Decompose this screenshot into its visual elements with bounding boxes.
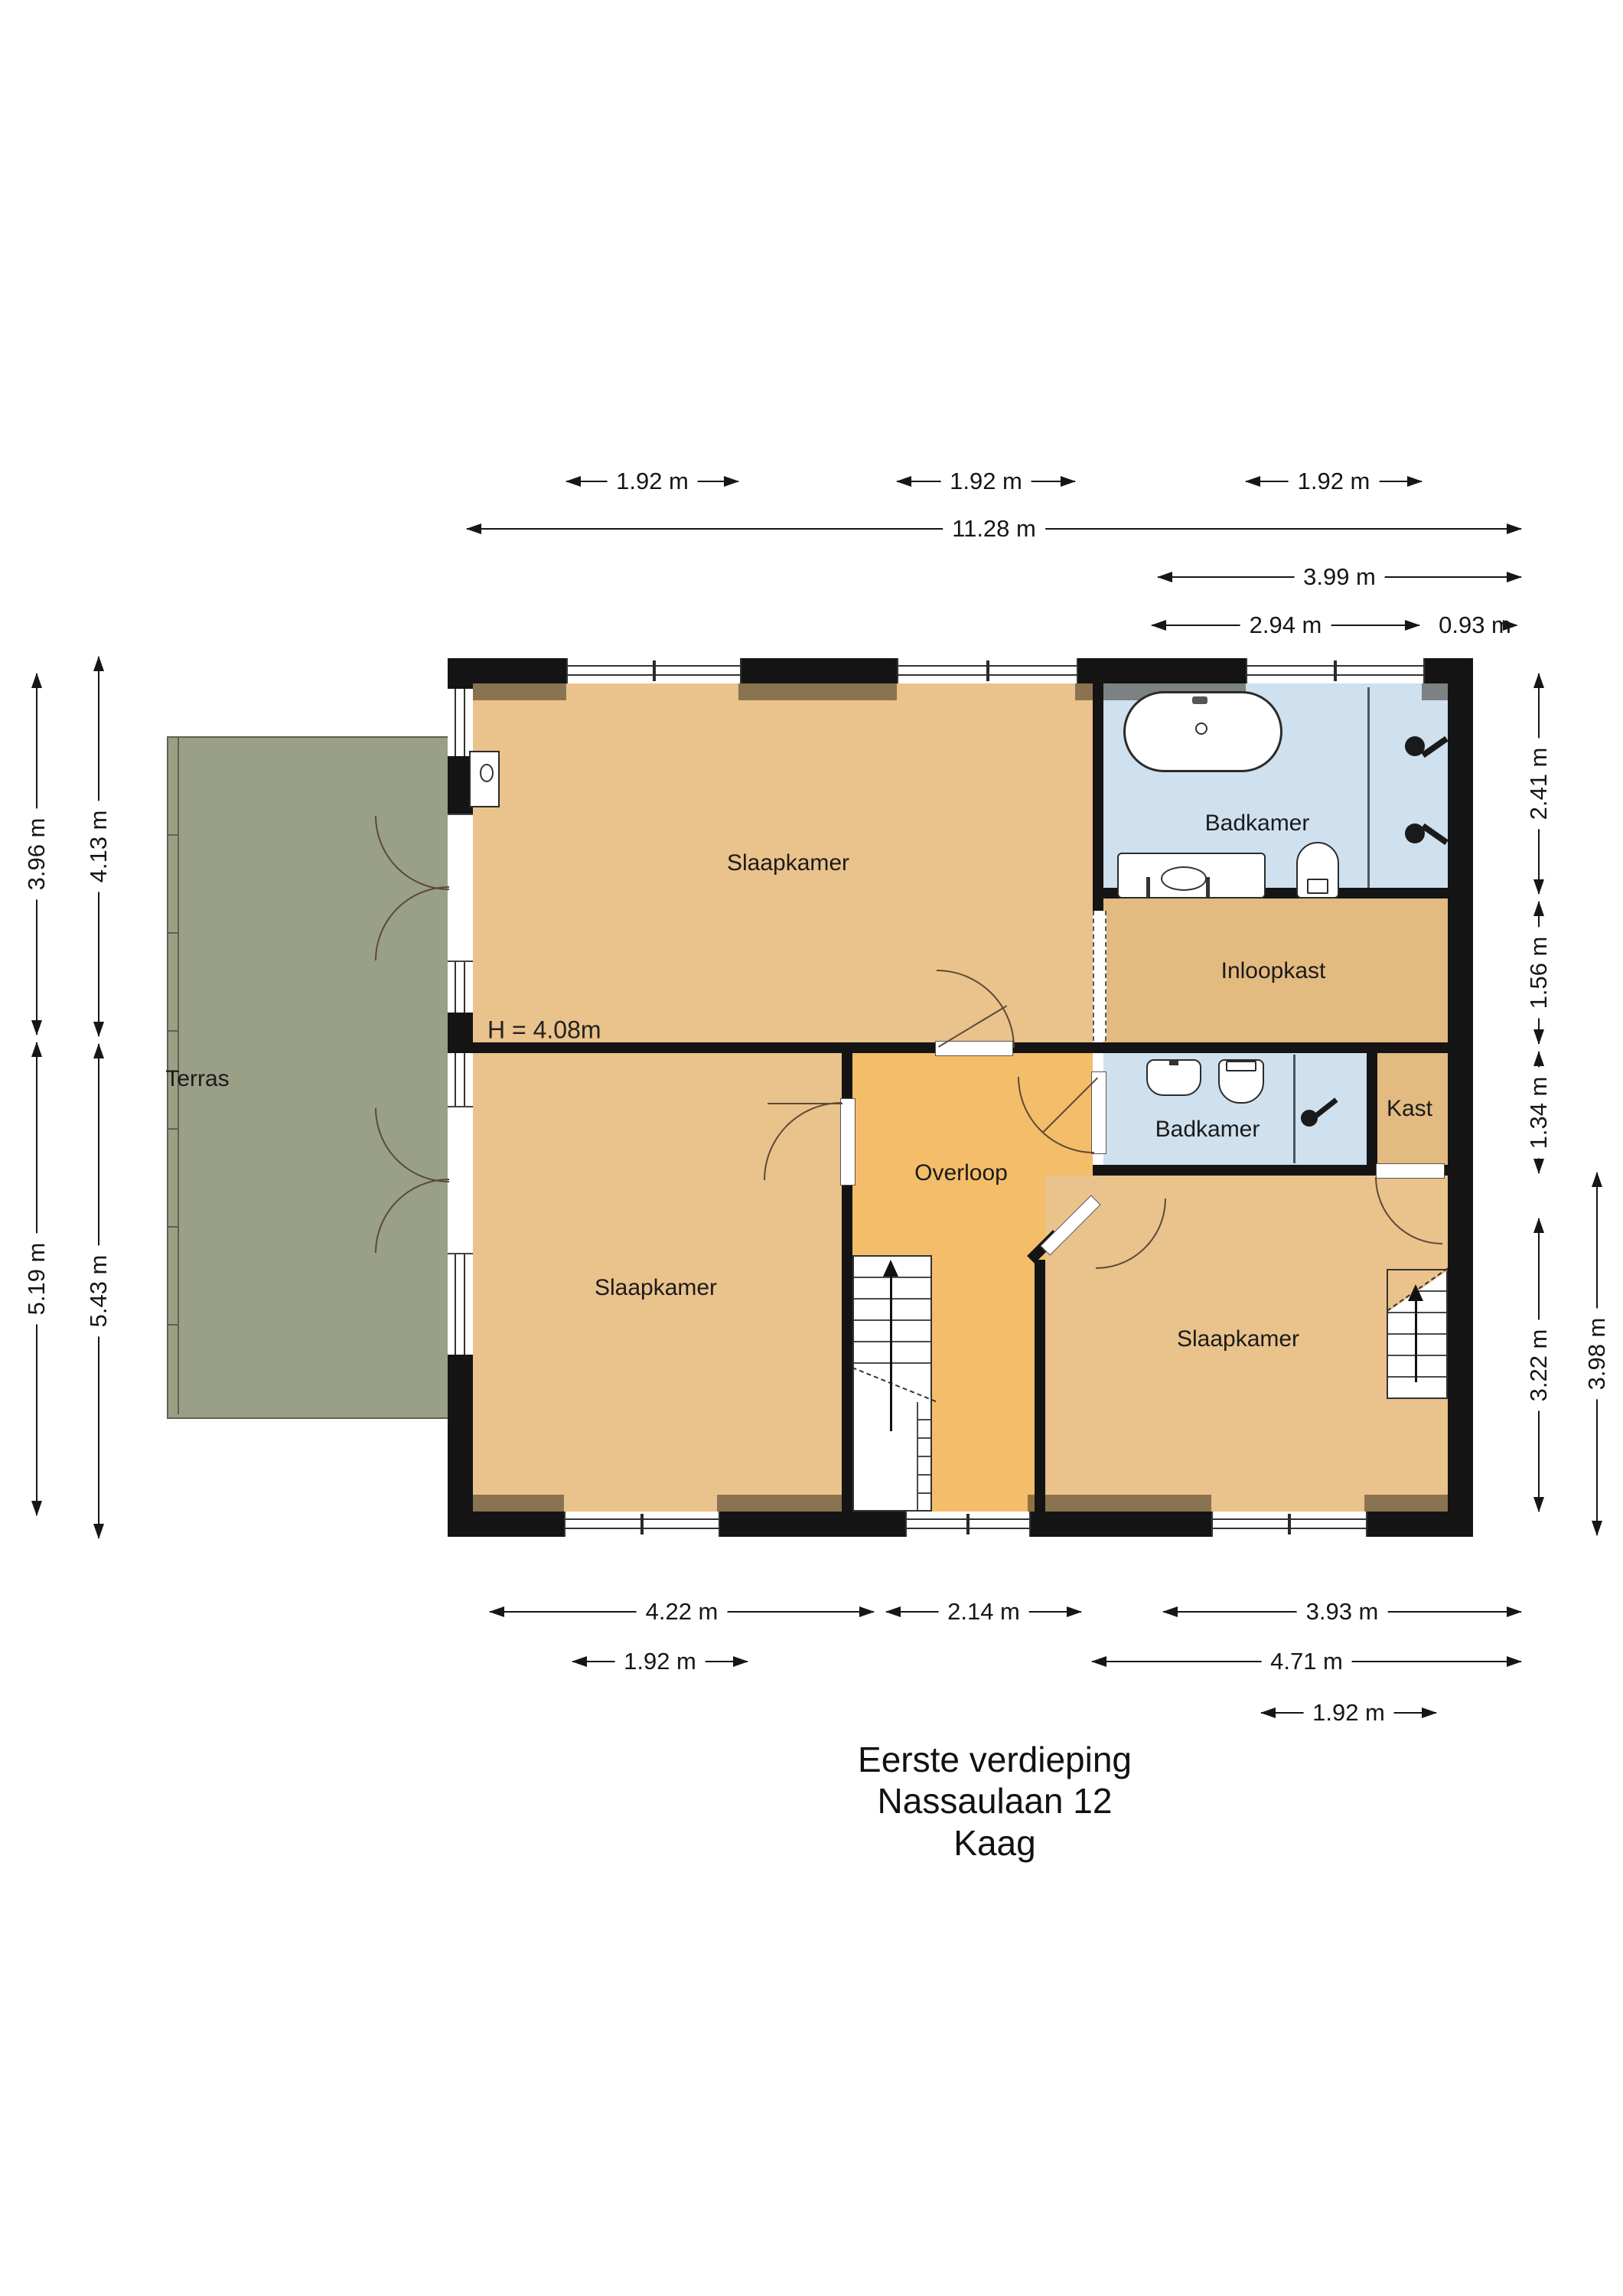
title-city: Kaag — [858, 1822, 1132, 1864]
dimension-label: 0.93 m — [1429, 612, 1520, 639]
wall-shower-kast — [1367, 1053, 1377, 1176]
dimension-shower-width: 0.93 m — [1432, 625, 1517, 626]
dimension-label: 3.99 m — [1294, 563, 1385, 591]
dimension-label: 5.19 m — [23, 1234, 51, 1325]
window-bottom — [1211, 1512, 1367, 1537]
stair-up-arrow-icon — [883, 1260, 898, 1277]
wall-shadow — [472, 1495, 564, 1512]
window-top — [566, 658, 741, 683]
room-label-terras: Terras — [165, 1066, 229, 1092]
dimension-right-bedroom-inner: 3.22 m — [1538, 1218, 1540, 1512]
dimension-label: 3.96 m — [23, 809, 51, 900]
room-label-badkamer-small: Badkamer — [1155, 1117, 1260, 1143]
stair-up-arrow-icon — [1408, 1284, 1423, 1301]
dimension-top-window3: 1.92 m — [1246, 481, 1422, 482]
room-label-slaapkamer-top: Slaapkamer — [727, 850, 849, 876]
room-label-slaapkamer-br: Slaapkamer — [1177, 1326, 1299, 1352]
dimension-left-bottom-inner: 5.19 m — [36, 1042, 37, 1515]
terrace-door-frame — [448, 814, 473, 962]
floor-plan: Terras Slaapkamer Badkamer Inloopkast Ba… — [0, 0, 1623, 2296]
dimension-label: 2.41 m — [1525, 739, 1553, 830]
dimension-overloop-width: 2.14 m — [886, 1611, 1081, 1613]
dimension-label: 1.92 m — [614, 1648, 706, 1675]
window-left-sidelight — [448, 1053, 473, 1106]
window-left-sidelight — [448, 689, 473, 756]
dimension-right-smallbath: 1.34 m — [1538, 1052, 1540, 1173]
plan-title: Eerste verdieping Nassaulaan 12 Kaag — [858, 1739, 1132, 1864]
dimension-bedroom-br-outer: 4.71 m — [1092, 1661, 1521, 1662]
dimension-top-window2: 1.92 m — [897, 481, 1075, 482]
stair-direction-line — [1415, 1296, 1417, 1382]
room-label-slaapkamer-bl: Slaapkamer — [595, 1275, 717, 1301]
bathtub-drain-icon — [1195, 722, 1207, 735]
terrace-door-frame — [448, 1106, 473, 1254]
dimension-label: 5.43 m — [85, 1246, 112, 1337]
wall-shadow — [472, 683, 566, 700]
bathtub-faucet-icon — [1192, 696, 1207, 704]
ceiling-height-note: H = 4.08m — [487, 1016, 601, 1045]
wall-exterior-left-segment — [448, 1355, 473, 1537]
dimension-label: 2.14 m — [938, 1598, 1029, 1626]
room-label-inloopkast: Inloopkast — [1221, 958, 1326, 984]
room-label-overloop: Overloop — [914, 1160, 1008, 1186]
sink-tap-icon — [1169, 1059, 1178, 1065]
vanity-handle-icon — [1206, 877, 1210, 897]
toilet-tank — [1307, 879, 1328, 894]
dimension-label: 2.94 m — [1240, 612, 1331, 639]
opening-inloopkast — [1093, 911, 1106, 1041]
door-frame-bedroom-left — [840, 1098, 855, 1186]
window-top — [1246, 658, 1425, 683]
window-left-sidelight — [448, 1251, 473, 1355]
dimension-label: 1.92 m — [940, 468, 1031, 495]
shower-glass-divider-small — [1293, 1055, 1295, 1163]
door-frame-kast — [1376, 1163, 1445, 1179]
wall-shadow — [738, 683, 897, 700]
wall-unit-ring-icon — [480, 764, 494, 782]
vanity-handle-icon — [1146, 877, 1150, 897]
dimension-bedroom-br-width: 3.93 m — [1163, 1611, 1521, 1613]
vanity-basin-icon — [1161, 866, 1207, 891]
wall-exterior-left-segment — [448, 658, 473, 689]
wall-overloop-left — [842, 1184, 852, 1512]
dimension-left-top-inner: 3.96 m — [36, 673, 37, 1035]
wall-shadow — [1028, 1495, 1211, 1512]
dimension-top-window1: 1.92 m — [566, 481, 738, 482]
dimension-window-br: 1.92 m — [1261, 1712, 1436, 1714]
dimension-left-top-outer: 4.13 m — [98, 657, 99, 1036]
dimension-label: 4.22 m — [637, 1598, 728, 1626]
window-bottom — [564, 1512, 720, 1537]
wall-exterior-left-segment — [448, 1013, 473, 1053]
stair-direction-line — [890, 1270, 892, 1431]
dimension-right-bedroom-outer: 3.98 m — [1596, 1172, 1598, 1535]
dimension-label: 1.92 m — [1289, 468, 1380, 495]
dimension-label: 11.28 m — [943, 515, 1045, 543]
wall-mid-horizontal — [1012, 1042, 1448, 1053]
dimension-bathroom-width: 3.99 m — [1158, 576, 1521, 578]
dimension-label: 1.92 m — [1303, 1699, 1394, 1727]
wall-bedroom-bathroom — [1093, 683, 1103, 912]
dimension-label: 3.98 m — [1583, 1309, 1611, 1400]
door-leaf-bedroom-left — [768, 1103, 842, 1104]
dimension-bedroom-bl-width: 4.22 m — [490, 1611, 874, 1613]
shower-glass-divider — [1367, 687, 1370, 888]
dimension-window-bl: 1.92 m — [572, 1661, 748, 1662]
window-left-sidelight — [448, 959, 473, 1013]
dimension-label: 1.56 m — [1525, 928, 1553, 1019]
wall-exterior-right — [1448, 658, 1473, 1537]
dimension-right-bathroom: 2.41 m — [1538, 673, 1540, 894]
room-label-badkamer-top: Badkamer — [1205, 810, 1310, 837]
room-label-kast: Kast — [1387, 1096, 1432, 1122]
wall-smallbath-bottom — [1093, 1165, 1377, 1176]
wall-shadow — [1422, 683, 1448, 700]
wall-overloop-bedroom — [1035, 1260, 1045, 1512]
dimension-label: 3.22 m — [1525, 1319, 1553, 1411]
window-bottom — [905, 1512, 1031, 1537]
dimension-left-bottom-outer: 5.43 m — [98, 1044, 99, 1538]
wall-shadow — [1364, 1495, 1448, 1512]
dimension-label: 4.13 m — [85, 801, 112, 892]
dimension-bathroom-part: 2.94 m — [1152, 625, 1419, 626]
dimension-label: 1.92 m — [607, 468, 698, 495]
title-address: Nassaulaan 12 — [858, 1780, 1132, 1821]
dimension-label: 4.71 m — [1261, 1648, 1352, 1675]
stair-lower-flight — [917, 1402, 930, 1510]
dimension-total-width: 11.28 m — [467, 528, 1521, 530]
dimension-label: 1.34 m — [1525, 1067, 1553, 1158]
dimension-label: 3.93 m — [1297, 1598, 1388, 1626]
toilet-small-tank — [1226, 1061, 1256, 1071]
title-floor: Eerste verdieping — [858, 1739, 1132, 1780]
wall-overloop-left — [842, 1053, 852, 1100]
dimension-right-inloopkast: 1.56 m — [1538, 902, 1540, 1044]
window-top — [897, 658, 1078, 683]
